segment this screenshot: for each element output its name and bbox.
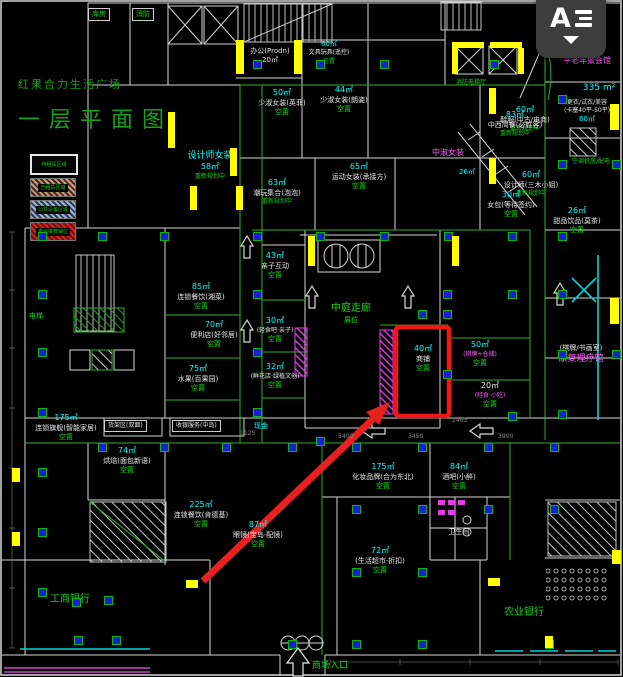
column-marker xyxy=(38,468,47,477)
annotation-arrow xyxy=(203,402,390,581)
column-marker xyxy=(38,232,47,241)
column-marker xyxy=(352,505,361,514)
column-marker xyxy=(490,60,499,69)
legend-item: 待租赁区域 xyxy=(30,154,78,175)
column-marker xyxy=(253,348,262,357)
column-marker xyxy=(612,160,621,169)
column-marker xyxy=(612,350,621,359)
dimension-label: 2463 xyxy=(452,417,467,424)
column-marker xyxy=(558,160,567,169)
column-marker xyxy=(222,443,231,452)
column-marker xyxy=(380,232,389,241)
floorplan-canvas: 红果合力生活广场 一层平面图 待租赁区域已租赁区域公共设备区域重点推荐铺位 库房… xyxy=(0,0,623,677)
ae-logo-glyph: A xyxy=(550,5,592,32)
column-marker xyxy=(98,232,107,241)
ae-logo-letter: A xyxy=(550,5,571,32)
highlight-rectangle xyxy=(396,327,449,416)
column-marker xyxy=(104,596,113,605)
direction-arrows xyxy=(241,236,566,438)
column-marker xyxy=(72,598,81,607)
column-marker xyxy=(418,505,427,514)
column-marker xyxy=(112,636,121,645)
wall-fill-mark xyxy=(12,532,20,546)
column-marker xyxy=(38,408,47,417)
wall-fill-mark xyxy=(12,468,20,482)
dimension-label: 3450 xyxy=(408,433,423,440)
legend-item: 重点推荐铺位 xyxy=(30,222,76,241)
wall-fill-mark xyxy=(294,40,302,74)
dimension-label: 1125 xyxy=(240,430,255,437)
column-marker xyxy=(38,290,47,299)
wall-fill-mark xyxy=(612,550,621,564)
column-marker xyxy=(508,232,517,241)
column-marker xyxy=(508,412,517,421)
column-marker xyxy=(253,60,262,69)
column-marker xyxy=(443,290,452,299)
column-marker xyxy=(443,310,452,319)
wall-fill-mark xyxy=(308,236,315,266)
escalator-icons xyxy=(318,124,537,272)
column-marker xyxy=(508,290,517,299)
column-marker xyxy=(484,505,493,514)
column-marker xyxy=(160,443,169,452)
dimension-label: 5400 xyxy=(338,433,353,440)
legend-label: 待租赁区域 xyxy=(39,161,68,169)
plan-title: 红果合力生活广场 xyxy=(18,76,173,92)
column-marker xyxy=(316,60,325,69)
column-marker xyxy=(352,640,361,649)
legend-label: 已租赁区域 xyxy=(38,184,67,192)
dimension-label: 3900 xyxy=(498,433,513,440)
column-marker xyxy=(38,588,47,597)
wall-fill-mark xyxy=(610,104,619,130)
column-marker xyxy=(316,232,325,241)
wall-fill-mark xyxy=(452,48,458,74)
wall-fill-mark xyxy=(489,88,496,114)
column-marker xyxy=(550,505,559,514)
legend: 待租赁区域已租赁区域公共设备区域重点推荐铺位 xyxy=(30,154,76,244)
column-marker xyxy=(418,640,427,649)
wall-fill-mark xyxy=(168,112,175,148)
wall-fill-mark xyxy=(190,186,197,210)
legend-item: 公共设备区域 xyxy=(30,200,76,219)
column-marker xyxy=(288,640,297,649)
wall-fill-mark xyxy=(545,636,553,648)
column-marker xyxy=(253,290,262,299)
column-marker xyxy=(98,443,107,452)
ae-watermark-button[interactable]: A xyxy=(536,0,606,58)
chevron-down-icon[interactable] xyxy=(563,36,579,44)
column-marker xyxy=(253,232,262,241)
legend-label: 公共设备区域 xyxy=(36,206,70,214)
wall-fill-mark xyxy=(230,148,237,176)
column-marker xyxy=(558,232,567,241)
column-marker xyxy=(418,568,427,577)
plan-subtitle: 一层平面图 xyxy=(18,102,173,134)
column-marker xyxy=(418,310,427,319)
wall-fill-mark xyxy=(488,578,500,586)
column-marker xyxy=(38,528,47,537)
wall-fill-mark xyxy=(489,158,496,184)
column-marker xyxy=(418,443,427,452)
column-marker xyxy=(288,443,297,452)
wall-fill-mark xyxy=(452,236,459,266)
wall-fill-mark xyxy=(236,186,243,210)
column-marker xyxy=(443,370,452,379)
ae-logo-bars-icon xyxy=(575,10,592,27)
column-marker xyxy=(160,232,169,241)
column-marker xyxy=(352,443,361,452)
column-marker xyxy=(74,636,83,645)
column-marker xyxy=(550,443,559,452)
column-marker xyxy=(380,60,389,69)
column-marker xyxy=(316,437,325,446)
road-lines xyxy=(4,668,150,672)
wall-fill-mark xyxy=(236,40,244,74)
wall-fill-mark xyxy=(518,48,524,74)
column-marker xyxy=(558,290,567,299)
column-marker xyxy=(484,443,493,452)
column-marker xyxy=(352,568,361,577)
column-marker xyxy=(558,95,567,104)
entrance-arrow-icon xyxy=(287,648,309,676)
title-block: 红果合力生活广场 一层平面图 xyxy=(18,76,173,134)
column-marker xyxy=(558,350,567,359)
wall-fill-mark xyxy=(186,580,198,588)
column-marker xyxy=(253,408,262,417)
column-marker xyxy=(558,410,567,419)
column-marker xyxy=(38,348,47,357)
wall-fill-mark xyxy=(610,298,619,324)
legend-item: 已租赁区域 xyxy=(30,178,76,197)
